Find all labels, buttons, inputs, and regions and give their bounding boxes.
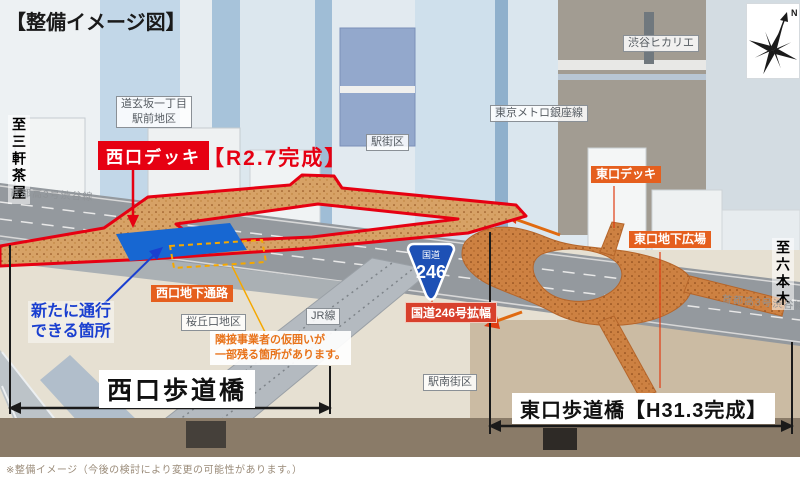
east-underground-plaza-label: 東口地下広場 [629, 231, 711, 248]
route-sign-number: 246 [416, 262, 446, 282]
area-label-jr-line: JR線 [306, 308, 340, 325]
shibuya-development-diagram: 国道 246 N 【整備イメージ図】 道玄坂一丁目 駅前地区 西口デッキ [0, 0, 800, 482]
west-underground-passage-label: 西口地下通路 [151, 285, 233, 302]
compass-north-label: N [791, 8, 798, 18]
footnote: ※整備イメージ（今後の検討により変更の可能性があります。） [6, 461, 302, 476]
new-passage-annotation: 新たに通行 できる箇所 [28, 301, 114, 343]
area-label-dogenzaka-line1: 道玄坂一丁目 [121, 98, 187, 110]
new-passage-line2: できる箇所 [31, 323, 111, 340]
area-label-dogenzaka-line2: 駅前地区 [132, 113, 176, 125]
temporary-fence-line2: 一部残る箇所があります。 [215, 349, 346, 361]
area-label-dogenzaka: 道玄坂一丁目 駅前地区 [116, 96, 192, 128]
temporary-fence-line1: 隣接事業者の仮囲いが [215, 334, 325, 346]
route246-widening-label: 国道246号拡幅 [405, 302, 497, 323]
new-passage-line1: 新たに通行 [31, 303, 111, 320]
compass-icon: N [746, 3, 800, 79]
route-sign-prefix: 国道 [422, 249, 440, 260]
west-deck-label: 西口デッキ [98, 141, 209, 170]
temporary-fence-annotation: 隣接事業者の仮囲いが 一部残る箇所があります。 [210, 331, 351, 365]
east-deck-label: 東口デッキ [591, 166, 661, 183]
area-label-sakuragaoka: 桜丘口地区 [181, 314, 246, 331]
page-title: 【整備イメージ図】 [6, 6, 186, 35]
west-bridge-label: 西口歩道橋 [99, 370, 255, 408]
area-label-ginza-line: 東京メトロ銀座線 [490, 105, 588, 122]
area-label-ekinan: 駅南街区 [423, 374, 477, 391]
west-deck-completion-label: 【R2.7完成】 [203, 142, 347, 172]
east-bridge-label: 東口歩道橋【H31.3完成】 [512, 393, 775, 424]
area-label-ekigaiku: 駅街区 [366, 134, 409, 151]
area-label-hikarie: 渋谷ヒカリエ [623, 35, 699, 52]
